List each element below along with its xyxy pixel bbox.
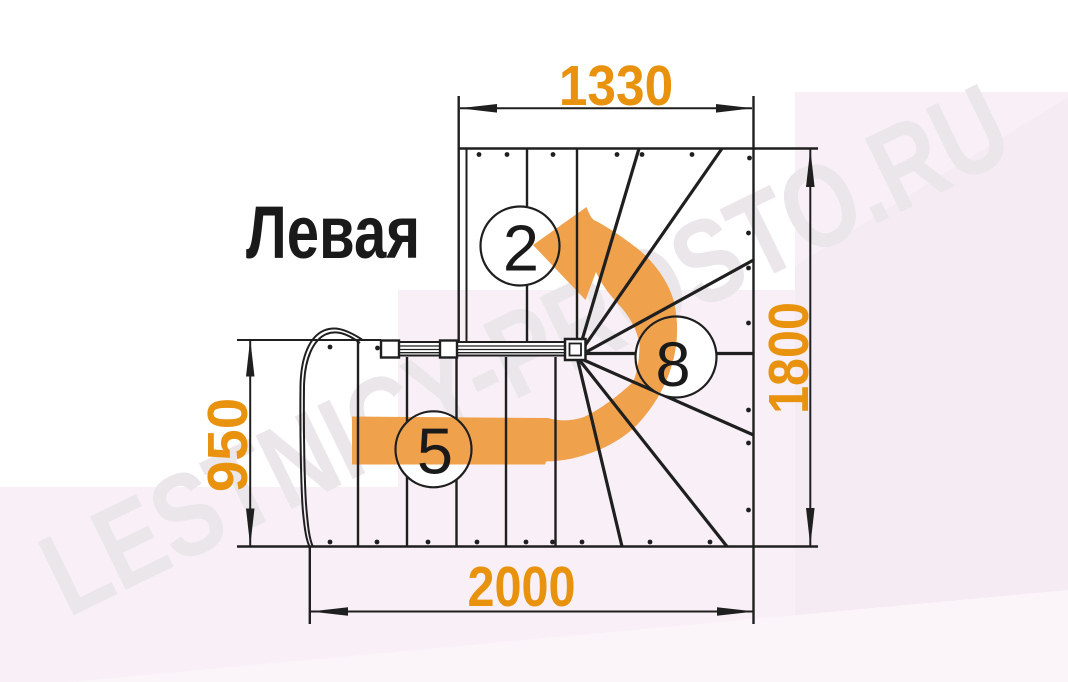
svg-text:950: 950 bbox=[196, 398, 259, 492]
svg-text:2: 2 bbox=[503, 212, 539, 285]
svg-text:8: 8 bbox=[655, 330, 690, 400]
svg-text:1330: 1330 bbox=[559, 55, 673, 118]
svg-text:1800: 1800 bbox=[758, 302, 820, 414]
svg-text:Левая: Левая bbox=[246, 192, 420, 274]
svg-text:5: 5 bbox=[417, 415, 453, 488]
svg-text:2000: 2000 bbox=[467, 556, 575, 619]
